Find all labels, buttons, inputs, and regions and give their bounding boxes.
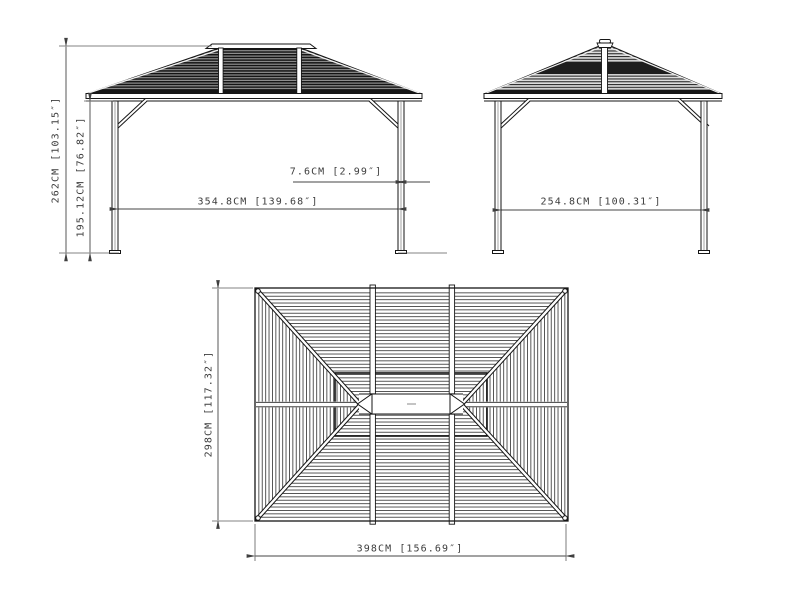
roof-plan-view: 298CM [117.32″] 398CM [156.69″]: [204, 285, 569, 561]
dim-label-plan-depth: 298CM [117.32″]: [204, 351, 215, 458]
drawing-page: 262CM [103.15″] 195.12CM [76.82″] 354.8C…: [0, 0, 800, 600]
dim-label-post-width: 7.6CM [2.99″]: [290, 167, 383, 178]
front-elevation-view: 262CM [103.15″] 195.12CM [76.82″] 354.8C…: [51, 44, 448, 254]
front-knee-brace-left: [117, 100, 146, 127]
front-eave-beam: [86, 94, 422, 99]
side-eave-beam: [484, 94, 722, 99]
side-center-post: [602, 47, 608, 94]
front-vent-post-left: [219, 48, 224, 95]
side-elevation-view: 254.8CM [100.31″]: [484, 40, 722, 254]
front-vent-post-right: [297, 48, 302, 95]
dim-label-side-width: 254.8CM [100.31″]: [540, 197, 661, 208]
technical-drawing-canvas: 262CM [103.15″] 195.12CM [76.82″] 354.8C…: [0, 0, 800, 600]
side-roof-finial: [597, 40, 613, 48]
dim-label-total-height: 262CM [103.15″]: [51, 97, 62, 204]
plan-center-beam-right: [464, 402, 567, 408]
side-post-left-base: [493, 251, 504, 254]
dim-label-front-width: 354.8CM [139.68″]: [197, 197, 318, 208]
plan-center-beam-left: [256, 402, 358, 408]
side-knee-brace-left: [500, 100, 529, 127]
front-roof-slope: [86, 48, 422, 94]
front-knee-brace-right: [370, 100, 399, 127]
side-post-right-base: [699, 251, 710, 254]
dim-label-post-height: 195.12CM [76.82″]: [76, 116, 87, 237]
dim-label-plan-width: 398CM [156.69″]: [357, 544, 464, 555]
